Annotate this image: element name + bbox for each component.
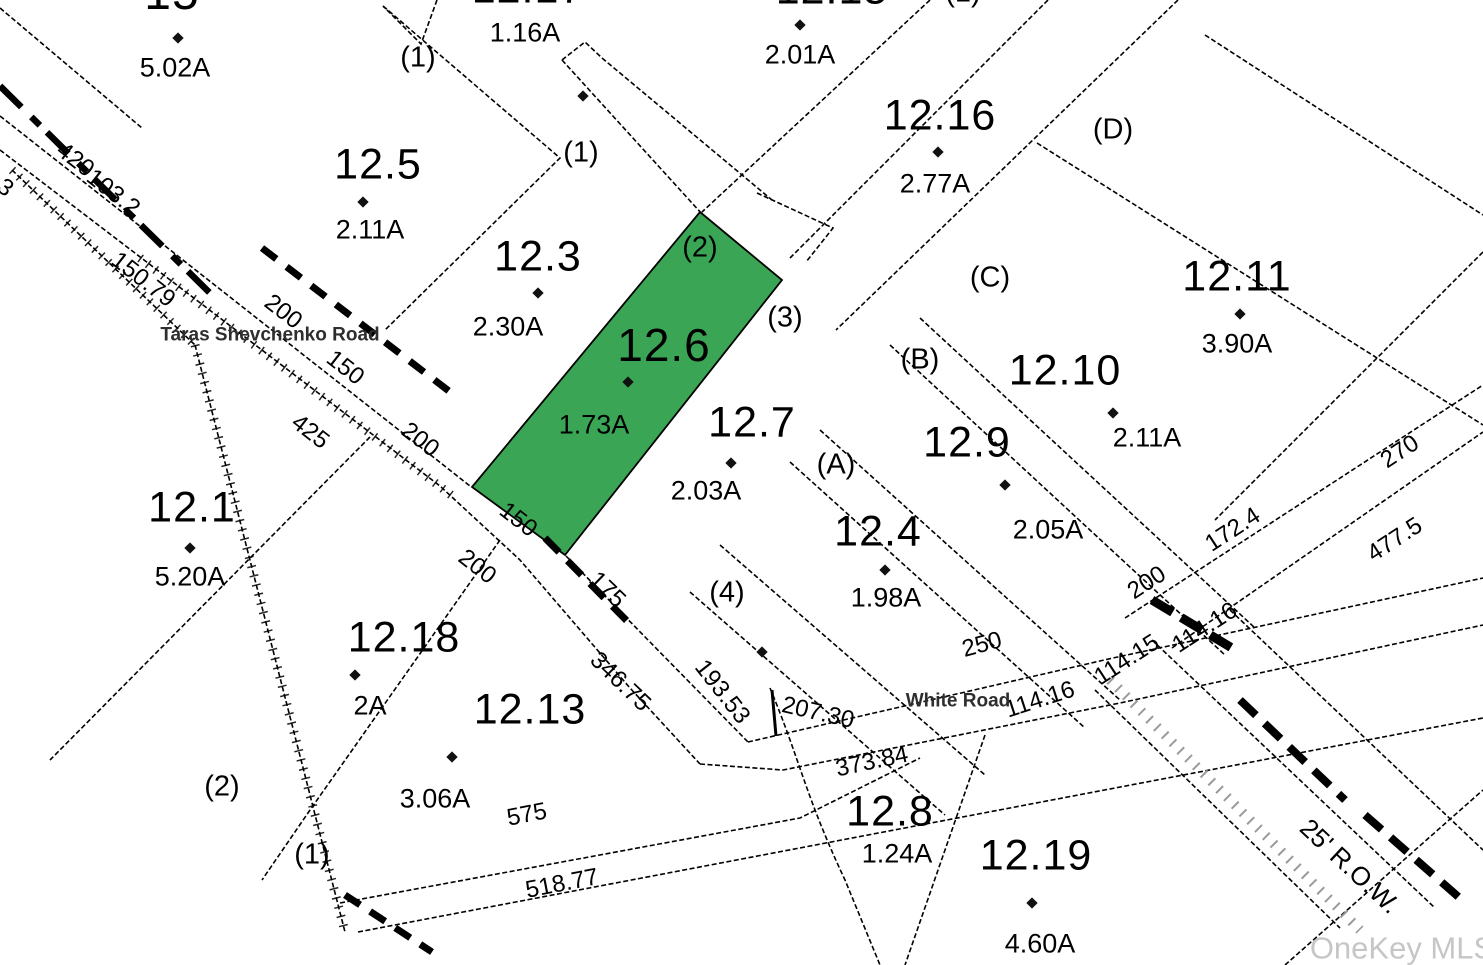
parcel-number-label: 12.16 — [884, 95, 997, 138]
lot-ref-label: (D) — [1093, 116, 1133, 145]
lot-ref-label: (B) — [901, 346, 940, 375]
parcel-acreage-label: 1.16A — [490, 20, 561, 47]
lot-ref-label: (1) — [945, 0, 980, 8]
parcel-number-label: 12.15 — [776, 0, 889, 12]
dimension-label: 175 — [584, 567, 629, 612]
parcel-number-label: 12.17 — [472, 0, 585, 11]
parcel-acreage-label: 3.06A — [400, 786, 471, 813]
lot-ref-label: (1) — [563, 139, 598, 168]
parcel-centroid-dot — [184, 542, 195, 553]
parcel-acreage-label: 2.11A — [336, 217, 405, 244]
parcel-number-label: 12.11 — [1182, 256, 1291, 299]
dimension-label: 200 — [1124, 562, 1171, 604]
lot-ref-label: (2) — [682, 234, 717, 263]
map-labels: 155.02A12.52.11A12.171.16A12.32.30A12.15… — [0, 0, 1483, 965]
dimension-label: 250 — [960, 628, 1005, 662]
parcel-centroid-dot — [999, 479, 1010, 490]
parcel-centroid-dot — [879, 564, 890, 575]
parcel-centroid-dot — [446, 751, 457, 762]
parcel-number-label: 12.18 — [348, 617, 461, 660]
right-of-way-label: 25' R.O.W. — [1295, 814, 1404, 918]
dimension-label: 150 — [322, 346, 368, 390]
lot-ref-label: (4) — [709, 579, 744, 608]
parcel-centroid-dot — [756, 646, 767, 657]
dimension-label: 114.15 — [1090, 630, 1163, 689]
parcel-number-label: 12.8 — [846, 791, 934, 834]
dimension-label: 207.30 — [780, 693, 857, 733]
dimension-label: 193.53 — [690, 656, 754, 729]
lot-ref-label: (2) — [204, 773, 239, 802]
plat-map: 155.02A12.52.11A12.171.16A12.32.30A12.15… — [0, 0, 1483, 965]
parcel-acreage-label: 2.05A — [1013, 517, 1084, 544]
road-name-label: Taras Shevchenko Road — [160, 326, 379, 345]
lot-ref-label: (C) — [970, 264, 1010, 293]
parcel-centroid-dot — [357, 196, 368, 207]
dimension-label: 103.2 — [82, 165, 144, 221]
parcel-centroid-dot — [794, 19, 805, 30]
watermark: OneKey MLS — [1310, 933, 1483, 964]
parcel-acreage-label: 2.11A — [1113, 425, 1182, 452]
lot-ref-label: (A) — [817, 451, 856, 480]
parcel-centroid-dot — [1107, 407, 1118, 418]
parcel-centroid-dot — [577, 90, 588, 101]
parcel-centroid-dot — [622, 376, 633, 387]
parcel-centroid-dot — [932, 146, 943, 157]
parcel-acreage-label: 2.01A — [765, 42, 836, 69]
parcel-centroid-dot — [1234, 308, 1245, 319]
dimension-label: 373.84 — [834, 743, 911, 782]
dimension-label: 150.79 — [107, 248, 180, 312]
parcel-acreage-label: 2.30A — [473, 314, 544, 341]
parcel-acreage-label: 2A — [353, 693, 386, 720]
dimension-label: 575 — [505, 799, 549, 830]
parcel-acreage-label: 2.77A — [900, 171, 971, 198]
parcel-number-label: 12.7 — [708, 402, 796, 445]
parcel-acreage-label: 5.02A — [140, 55, 211, 82]
dimension-label: 200 — [397, 418, 443, 462]
dimension-label: 425 — [287, 410, 333, 454]
parcel-number-label: 12.1 — [148, 487, 236, 530]
parcel-number-label: 15 — [144, 0, 199, 18]
lot-ref-label: (3) — [767, 304, 802, 333]
parcel-number-label: 12.10 — [1009, 350, 1122, 393]
parcel-number-label: 12.3 — [494, 236, 582, 279]
parcel-centroid-dot — [1026, 897, 1037, 908]
dimension-label: 518.77 — [524, 865, 601, 903]
parcel-number-label: 12.9 — [923, 422, 1011, 465]
dimension-label: 200 — [454, 545, 500, 589]
lot-ref-label: (1) — [294, 841, 329, 870]
road-name-label: White Road — [906, 692, 1011, 711]
parcel-acreage-label: 1.73A — [559, 412, 630, 439]
dimension-label: 150 — [495, 498, 541, 542]
dimension-label: 270 — [1377, 431, 1424, 473]
parcel-acreage-label: 1.24A — [862, 841, 933, 868]
lot-ref-label: (1) — [400, 44, 435, 73]
parcel-acreage-label: 4.60A — [1005, 931, 1076, 958]
parcel-number-label: 12.5 — [334, 144, 422, 187]
parcel-number-label: 12.6 — [617, 322, 711, 368]
dimension-label: 172.4 — [1201, 504, 1264, 557]
parcel-centroid-dot — [349, 669, 360, 680]
dimension-label: 114.16 — [1002, 678, 1078, 723]
parcel-acreage-label: 5.20A — [155, 564, 226, 591]
dimension-label: 114.16 — [1168, 598, 1241, 657]
parcel-acreage-label: 3.90A — [1202, 331, 1273, 358]
parcel-centroid-dot — [725, 457, 736, 468]
dimension-label: 346.75 — [585, 648, 654, 716]
parcel-centroid-dot — [532, 287, 543, 298]
parcel-number-label: 12.19 — [980, 835, 1093, 878]
dimension-label: 3 — [0, 174, 18, 201]
parcel-centroid-dot — [172, 32, 183, 43]
parcel-acreage-label: 2.03A — [671, 478, 742, 505]
dimension-label: 477.5 — [1363, 514, 1426, 567]
parcel-number-label: 12.13 — [474, 689, 587, 732]
parcel-number-label: 12.4 — [834, 511, 922, 554]
parcel-acreage-label: 1.98A — [851, 585, 922, 612]
